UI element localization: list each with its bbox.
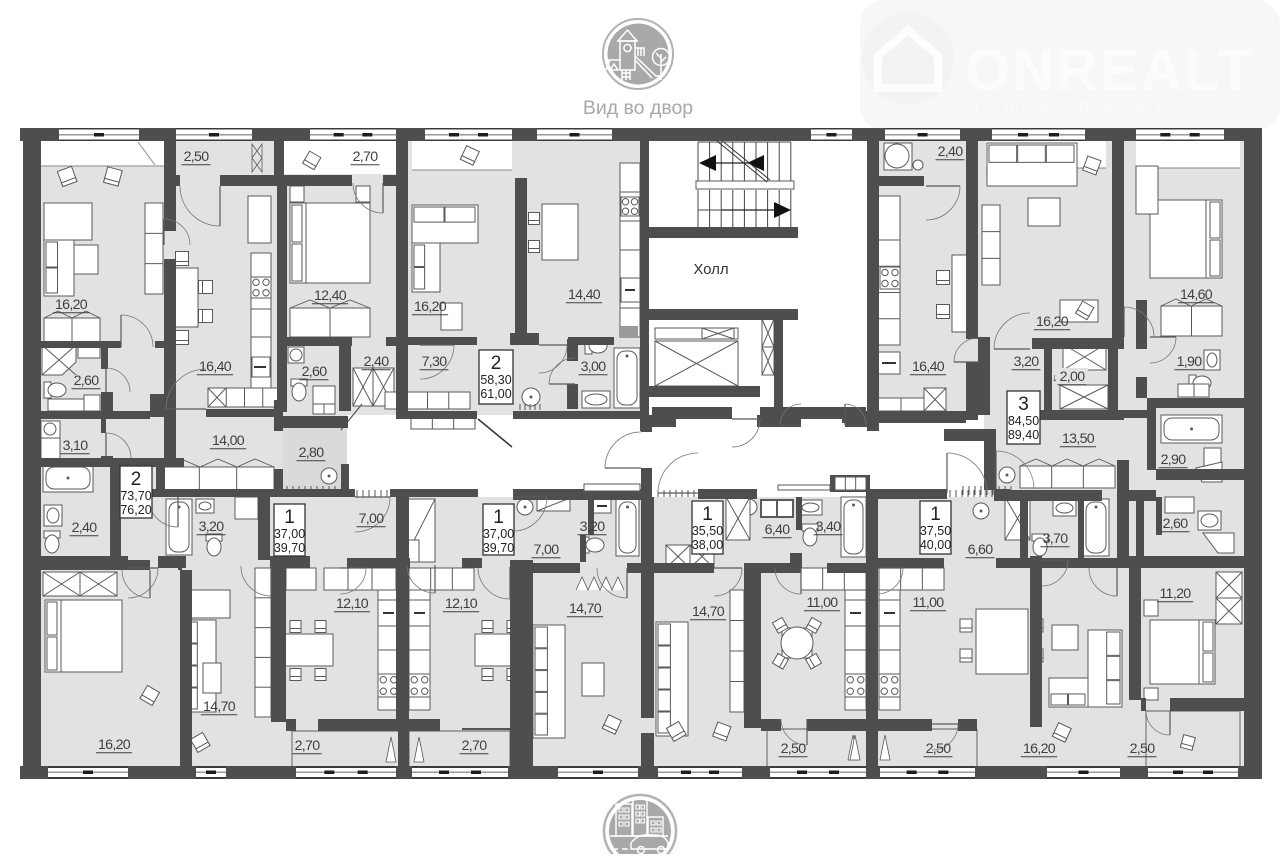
svg-text:2: 2 xyxy=(131,469,142,490)
svg-text:14,70: 14,70 xyxy=(569,601,602,617)
svg-text:16,20: 16,20 xyxy=(98,737,131,753)
svg-text:7,00: 7,00 xyxy=(359,511,385,527)
svg-text:1: 1 xyxy=(284,507,295,528)
svg-text:39,70: 39,70 xyxy=(483,541,514,555)
svg-text:16,20: 16,20 xyxy=(414,299,447,315)
svg-text:6,40: 6,40 xyxy=(765,522,791,538)
svg-text:2,50: 2,50 xyxy=(1130,741,1156,757)
svg-text:12,40: 12,40 xyxy=(314,288,347,304)
svg-text:7,00: 7,00 xyxy=(534,542,560,558)
svg-text:2,40: 2,40 xyxy=(72,520,98,536)
svg-text:14,00: 14,00 xyxy=(212,433,245,449)
svg-text:2,50: 2,50 xyxy=(926,741,952,757)
svg-text:14,60: 14,60 xyxy=(1180,287,1213,303)
svg-text:76,20: 76,20 xyxy=(120,503,151,517)
svg-text:13,50: 13,50 xyxy=(1062,431,1095,447)
svg-text:2,40: 2,40 xyxy=(938,144,964,160)
svg-text:ONREALT: ONREALT xyxy=(965,38,1255,103)
svg-text:89,40: 89,40 xyxy=(1008,428,1039,442)
svg-text:2,50: 2,50 xyxy=(781,741,807,757)
svg-text:40,00: 40,00 xyxy=(920,538,951,552)
svg-text:61,00: 61,00 xyxy=(480,387,511,401)
svg-text:14,70: 14,70 xyxy=(692,604,725,620)
svg-text:39,70: 39,70 xyxy=(274,541,305,555)
svg-text:3,40: 3,40 xyxy=(816,519,842,535)
svg-text:2,60: 2,60 xyxy=(74,373,100,389)
svg-text:37,50: 37,50 xyxy=(920,524,951,538)
svg-text:37,00: 37,00 xyxy=(483,527,514,541)
svg-text:84,50: 84,50 xyxy=(1008,414,1039,428)
svg-text:НЕДВИЖИМОСТЬ: НЕДВИЖИМОСТЬ xyxy=(968,98,1188,115)
svg-text:2,70: 2,70 xyxy=(462,738,488,754)
svg-text:2,40: 2,40 xyxy=(364,354,390,370)
svg-text:2,60: 2,60 xyxy=(302,364,328,380)
svg-text:Вид во двор: Вид во двор xyxy=(583,97,693,119)
svg-text:2,70: 2,70 xyxy=(295,738,321,754)
svg-text:1: 1 xyxy=(493,507,504,528)
svg-text:37,00: 37,00 xyxy=(274,527,305,541)
svg-text:73,70: 73,70 xyxy=(120,489,151,503)
svg-text:11,00: 11,00 xyxy=(807,595,839,611)
svg-text:1: 1 xyxy=(702,504,713,525)
svg-text:38,00: 38,00 xyxy=(692,538,723,552)
svg-text:2,50: 2,50 xyxy=(184,149,210,165)
svg-text:12,10: 12,10 xyxy=(336,596,369,612)
svg-text:3,00: 3,00 xyxy=(581,359,607,375)
svg-text:2,00: 2,00 xyxy=(1060,369,1086,385)
svg-text:6,60: 6,60 xyxy=(968,542,994,558)
svg-text:3,20: 3,20 xyxy=(580,519,606,535)
svg-text:58,30: 58,30 xyxy=(480,373,511,387)
svg-text:1: 1 xyxy=(930,504,941,525)
svg-text:3,20: 3,20 xyxy=(199,519,225,535)
svg-text:14,70: 14,70 xyxy=(203,699,236,715)
svg-text:Холл: Холл xyxy=(693,261,728,278)
svg-text:3: 3 xyxy=(1018,394,1029,415)
svg-text:1,90: 1,90 xyxy=(1177,354,1203,370)
svg-text:16,20: 16,20 xyxy=(1023,741,1056,757)
svg-text:2,60: 2,60 xyxy=(1163,516,1189,532)
svg-text:16,20: 16,20 xyxy=(55,297,88,313)
svg-text:7,30: 7,30 xyxy=(422,354,448,370)
svg-text:16,20: 16,20 xyxy=(1036,314,1069,330)
svg-text:14,40: 14,40 xyxy=(568,287,601,303)
svg-text:2,80: 2,80 xyxy=(299,445,325,461)
svg-text:16,40: 16,40 xyxy=(199,359,232,375)
svg-text:12,10: 12,10 xyxy=(445,596,478,612)
svg-text:2: 2 xyxy=(491,353,502,374)
svg-text:35,50: 35,50 xyxy=(692,524,723,538)
svg-text:↓: ↓ xyxy=(1052,372,1058,384)
svg-text:11,20: 11,20 xyxy=(1160,586,1192,602)
svg-text:3,70: 3,70 xyxy=(1043,531,1069,547)
svg-text:3,10: 3,10 xyxy=(63,438,89,454)
svg-text:16,40: 16,40 xyxy=(912,359,945,375)
svg-text:2,90: 2,90 xyxy=(1161,452,1187,468)
svg-text:2,70: 2,70 xyxy=(353,149,379,165)
svg-text:3,20: 3,20 xyxy=(1014,354,1040,370)
svg-text:11,00: 11,00 xyxy=(913,595,945,611)
